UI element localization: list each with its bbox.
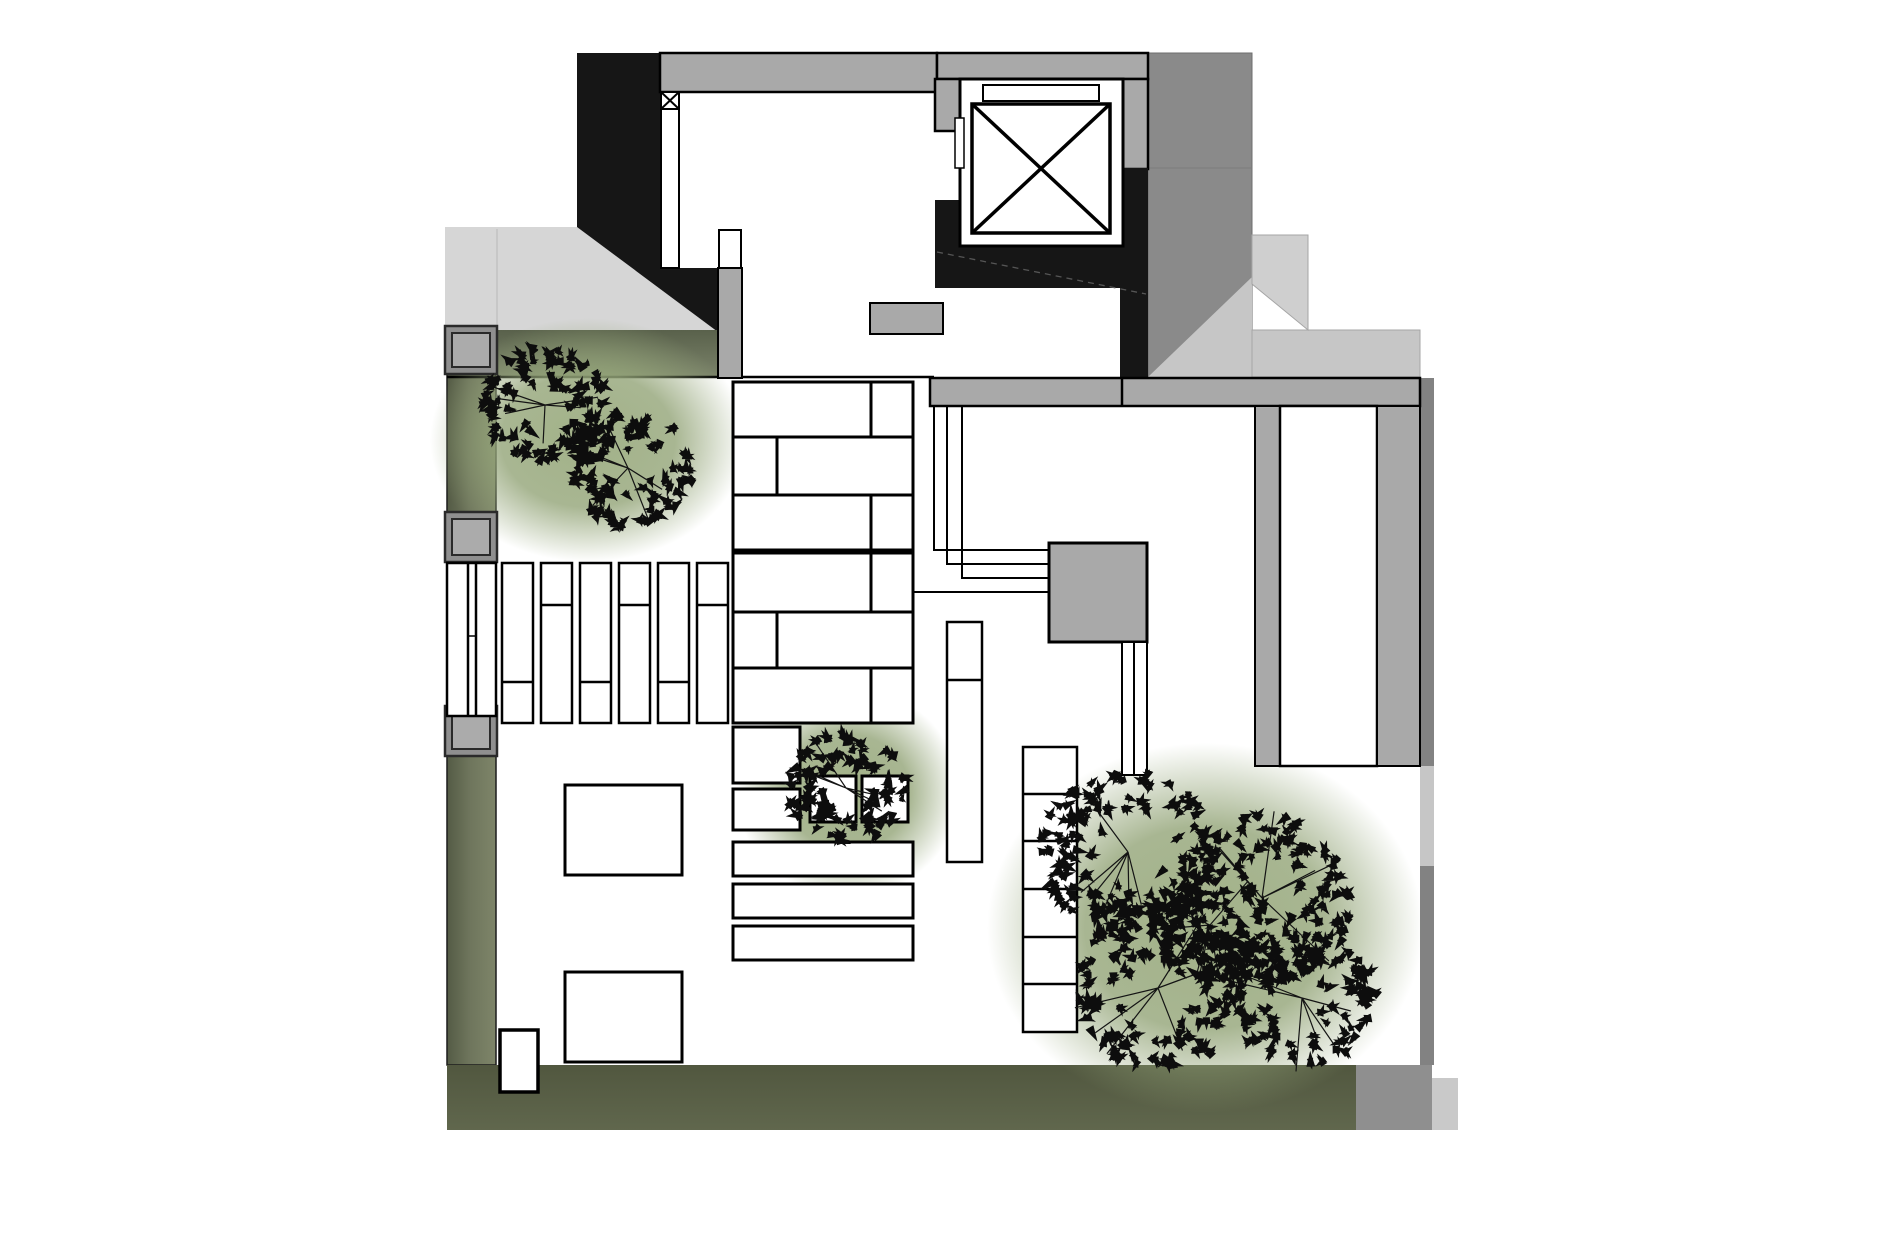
paver-slat-3 bbox=[733, 926, 913, 960]
top-wall bbox=[660, 53, 937, 92]
louver-slat-1 bbox=[502, 563, 533, 723]
door-track-east-pier bbox=[718, 268, 742, 378]
elevator-door-slab bbox=[983, 85, 1099, 101]
plan-drawing bbox=[0, 0, 1890, 1259]
louver-slat-4 bbox=[619, 563, 650, 723]
paver-row-4 bbox=[733, 553, 913, 612]
floor-plan-canvas bbox=[0, 0, 1890, 1259]
louver-slat-2 bbox=[541, 563, 572, 723]
paver-slat-2 bbox=[733, 884, 913, 918]
elevator-cab-symbol bbox=[972, 104, 1110, 233]
east-wall-strip bbox=[1377, 406, 1420, 766]
elevator-black-south bbox=[935, 246, 1120, 288]
paver-row-1 bbox=[733, 382, 913, 437]
equipment-pad bbox=[1049, 543, 1147, 642]
east-edge-light-segment bbox=[1420, 766, 1434, 866]
terrace-table-a bbox=[565, 785, 682, 875]
drain-channel bbox=[1122, 642, 1147, 775]
elevator-black-west bbox=[935, 200, 962, 246]
terrace-table-b bbox=[565, 972, 682, 1062]
elevator-jamb bbox=[955, 118, 964, 168]
paver-row-3 bbox=[733, 495, 913, 550]
bench-long bbox=[947, 622, 982, 862]
door-track-east-top bbox=[719, 230, 741, 268]
ramp-upper-flight bbox=[1252, 235, 1308, 330]
east-mullion bbox=[1255, 406, 1280, 766]
garden-gate-box bbox=[500, 1030, 538, 1092]
paver-row-5 bbox=[733, 612, 913, 668]
door-track-west bbox=[661, 109, 679, 268]
paver-row-6 bbox=[733, 668, 913, 723]
paver-slat-1 bbox=[733, 842, 913, 876]
entry-column-box bbox=[661, 92, 679, 109]
louver-slat-3 bbox=[580, 563, 611, 723]
south-band-gray-end bbox=[1356, 1065, 1432, 1130]
southeast-step bbox=[1432, 1078, 1458, 1130]
lobby-top-wall bbox=[937, 53, 1148, 79]
planter-3 bbox=[452, 713, 490, 749]
ramp-landing-band bbox=[1252, 330, 1420, 377]
louver-slat-5 bbox=[658, 563, 689, 723]
planter-2 bbox=[452, 519, 490, 555]
east-wall-band bbox=[930, 378, 1420, 406]
east-edge-strip bbox=[1420, 378, 1434, 1065]
planter-1 bbox=[452, 333, 490, 367]
paver-box-b bbox=[733, 789, 800, 830]
louver-slat-6 bbox=[697, 563, 728, 723]
strip-gate bbox=[447, 563, 496, 716]
paver-row-2 bbox=[733, 437, 913, 495]
rail-3 bbox=[962, 380, 1049, 578]
service-box-north bbox=[870, 303, 943, 334]
skylight-bar bbox=[1280, 406, 1377, 766]
